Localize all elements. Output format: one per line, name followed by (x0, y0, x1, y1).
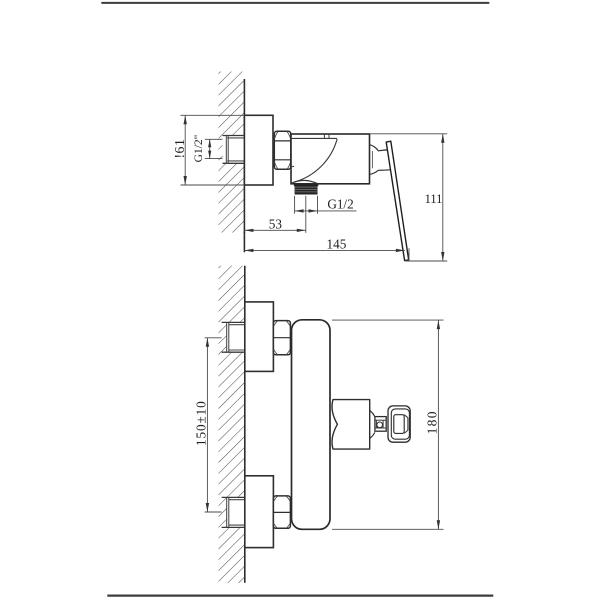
svg-text:150±10: 150±10 (194, 400, 209, 446)
svg-text:53: 53 (269, 216, 283, 231)
svg-text:111: 111 (425, 192, 443, 206)
svg-text:180: 180 (425, 410, 440, 434)
svg-text:G1/2": G1/2" (193, 135, 205, 163)
svg-text:145: 145 (327, 236, 347, 251)
svg-text:G1/2: G1/2 (327, 197, 353, 212)
svg-text:!61: !61 (172, 139, 187, 159)
